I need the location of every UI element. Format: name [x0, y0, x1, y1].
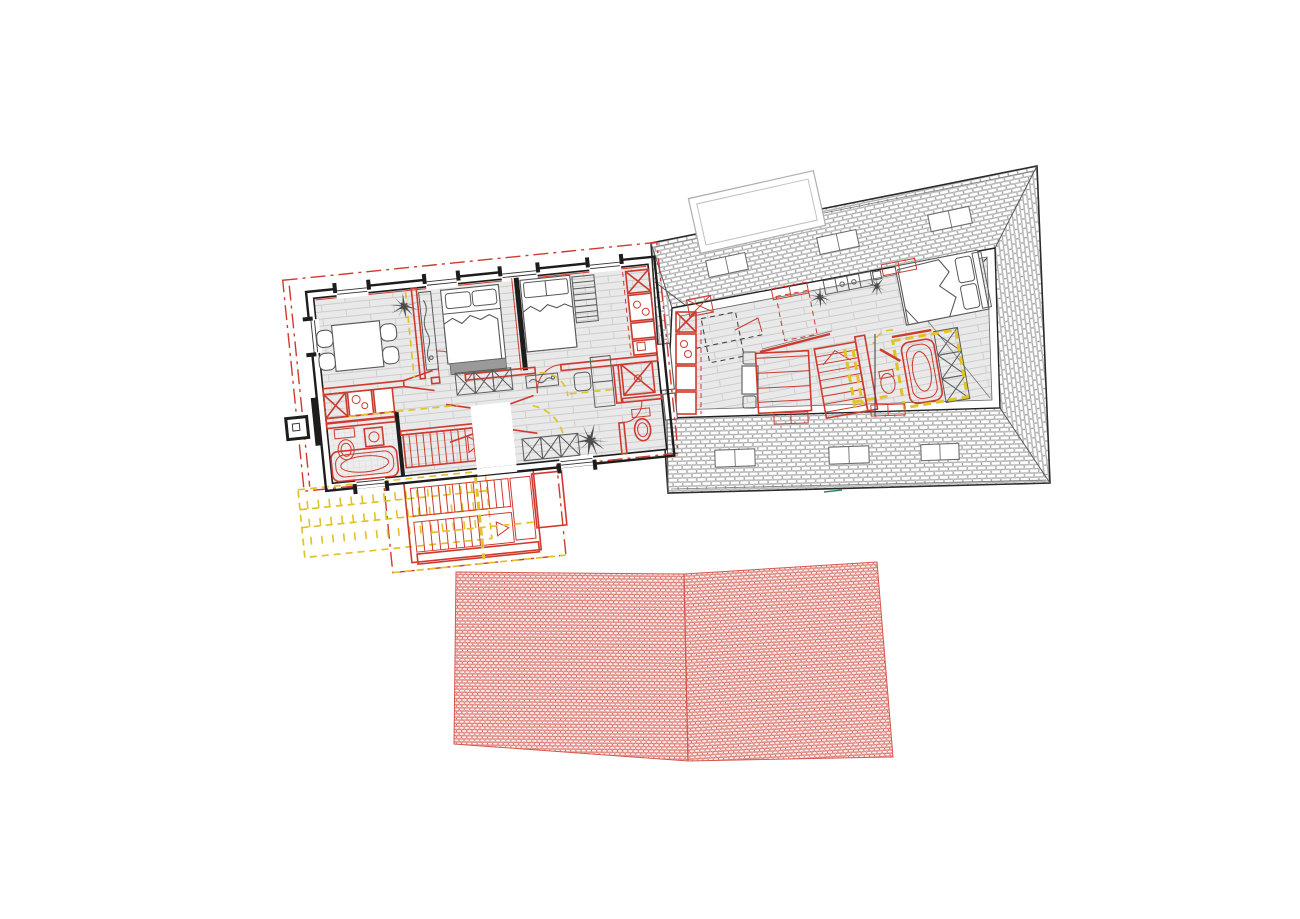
attic-roof-plan	[651, 166, 1050, 493]
skylight	[829, 446, 870, 464]
roof-tile-panels	[454, 562, 893, 761]
tile-panel-right	[684, 562, 893, 761]
ground-floor-plan	[272, 242, 688, 582]
chimney	[286, 417, 309, 440]
floor-plan-canvas	[0, 0, 1300, 919]
tile-panel-left	[454, 572, 688, 761]
cad-drawing	[0, 0, 1300, 919]
skylight	[921, 443, 960, 460]
bed-1	[441, 285, 507, 375]
skylight	[715, 449, 756, 467]
bed-2	[520, 275, 577, 352]
survey-mark	[824, 490, 842, 492]
